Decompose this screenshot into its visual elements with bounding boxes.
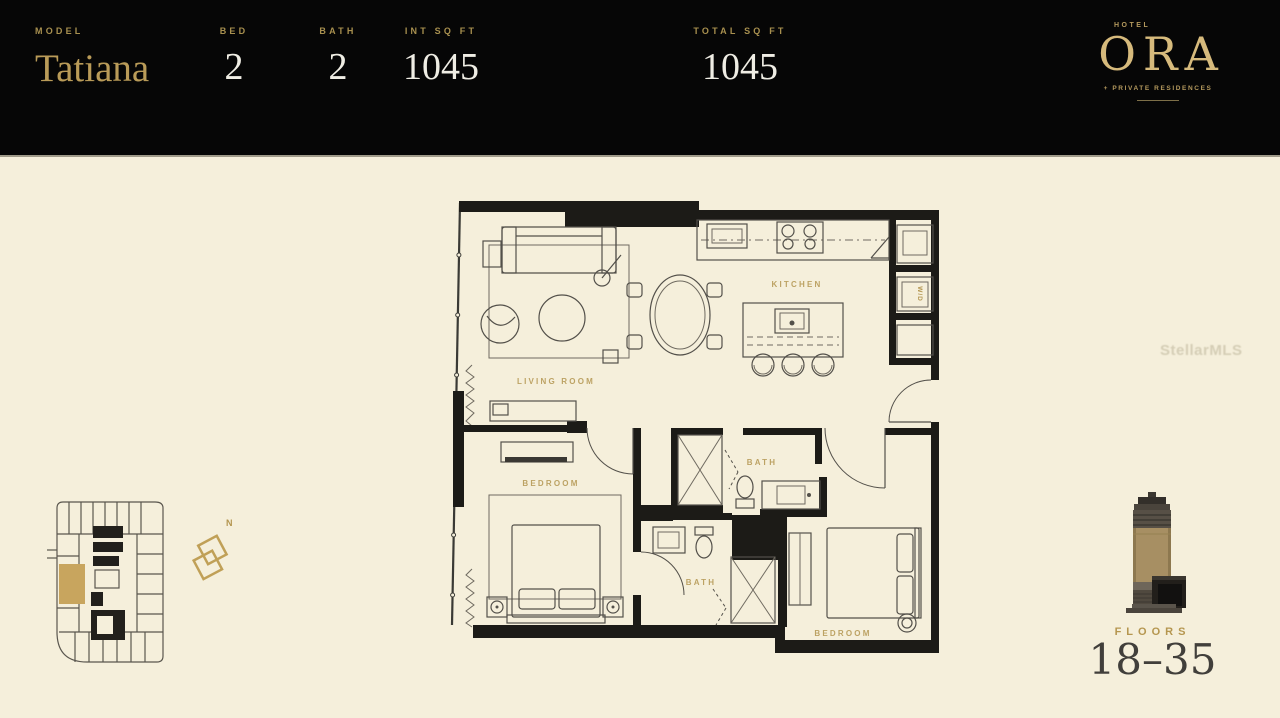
bedroom-left-furniture	[487, 442, 623, 623]
stat-int-sqft: INT SQ FT 1045	[403, 26, 479, 86]
appliance-column	[897, 225, 933, 355]
bath-upper-label: BATH	[747, 458, 777, 467]
floors-range: 18–35	[1065, 638, 1240, 682]
stat-bed-value: 2	[220, 48, 249, 86]
stat-bath-value: 2	[319, 48, 356, 86]
bath-upper-fixtures	[678, 435, 820, 509]
stat-total-sqft-value: 1045	[693, 48, 786, 86]
north-squares	[188, 536, 231, 579]
dining-furniture	[627, 275, 722, 355]
stat-bed: BED 2	[220, 26, 249, 86]
logo-rule	[1137, 100, 1179, 101]
living-room-furniture	[481, 227, 629, 421]
hotel-ora-logo: HOTEL ORA + PRIVATE RESIDENCES	[1108, 22, 1208, 101]
header-bar: MODEL Tatiana BED 2 BATH 2 INT SQ FT 104…	[0, 0, 1280, 155]
floorplan-sheet: MODEL Tatiana BED 2 BATH 2 INT SQ FT 104…	[0, 0, 1280, 718]
north-label: N	[226, 518, 233, 528]
bedroom-right-door	[825, 428, 885, 488]
bedroom-right-label: BEDROOM	[814, 629, 871, 638]
key-plan-core	[91, 526, 125, 640]
stat-total-sqft: TOTAL SQ FT 1045	[693, 26, 786, 86]
living-room-label: LIVING ROOM	[517, 377, 595, 386]
bedroom-left-door	[587, 428, 633, 474]
watermark-text: StellarMLS	[1160, 342, 1243, 359]
key-plan	[45, 498, 175, 676]
north-indicator: N	[180, 510, 240, 590]
entry-door	[889, 380, 931, 422]
stat-int-sqft-value: 1045	[403, 48, 479, 86]
logo-ora-word: ORA	[1091, 31, 1225, 77]
washer-dryer-label: W/D	[916, 286, 923, 302]
bedroom-right-furniture	[789, 528, 921, 632]
bedroom-left-label: BEDROOM	[522, 479, 579, 488]
key-plan-unit-highlight	[59, 564, 85, 604]
bath-lower-label: BATH	[686, 578, 716, 587]
kitchen-label: KITCHEN	[772, 280, 823, 289]
stat-int-sqft-label: INT SQ FT	[403, 26, 479, 36]
stat-bath: BATH 2	[319, 26, 356, 86]
tower-graphic	[1108, 490, 1196, 620]
stat-bath-label: BATH	[319, 26, 356, 36]
floor-plan-drawing: LIVING ROOM	[445, 195, 945, 661]
kitchen-furniture	[697, 220, 889, 376]
tower-highlight-band	[1133, 528, 1171, 582]
model-name: Tatiana	[35, 49, 149, 88]
stat-bed-label: BED	[220, 26, 249, 36]
model-label: MODEL	[35, 26, 149, 36]
bath-lower-entry-door	[641, 552, 684, 595]
logo-tagline: + PRIVATE RESIDENCES	[1104, 85, 1213, 92]
stat-total-sqft-label: TOTAL SQ FT	[693, 26, 786, 36]
model-block: MODEL Tatiana	[35, 26, 149, 88]
